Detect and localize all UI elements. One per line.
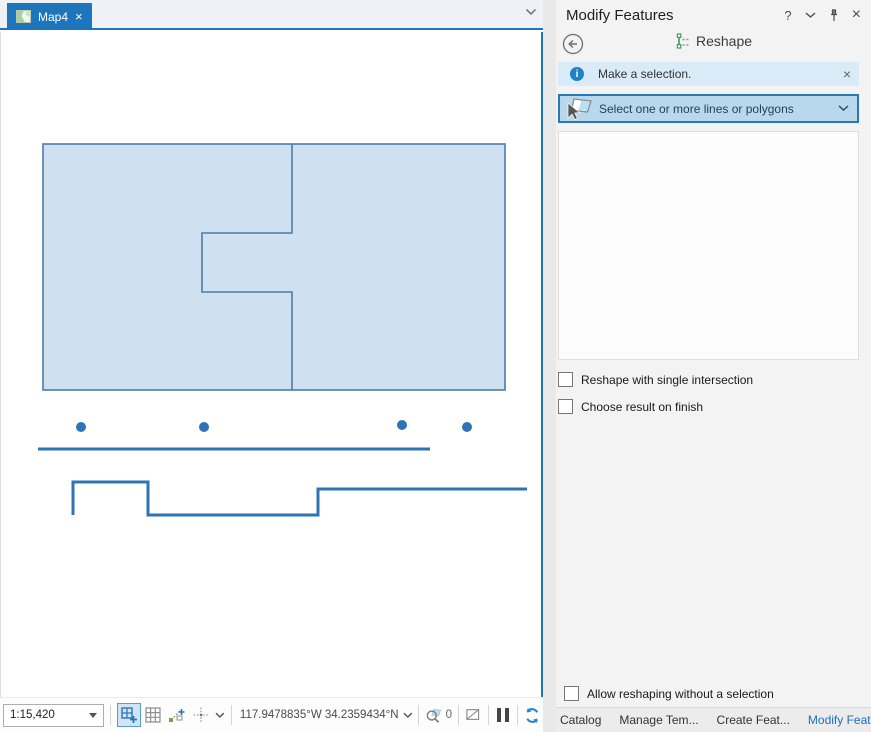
map-view-tab[interactable]: Map4 × (7, 3, 92, 30)
vertex-snapping-icon (168, 707, 186, 723)
snap-to-features-button[interactable] (165, 703, 189, 727)
map-status-bar: 1:15,420 (0, 697, 543, 732)
line-feature-stepped[interactable] (73, 482, 527, 515)
dock-tab-bar: Catalog Manage Tem... Create Feat... Mod… (556, 707, 871, 732)
arcgis-pro-window: Map4 × 1:15,420 (0, 0, 871, 732)
map-canvas[interactable] (0, 32, 543, 697)
crosshair-icon (193, 707, 209, 723)
selected-count: 0 (446, 709, 452, 721)
checkbox-label: Allow reshaping without a selection (587, 687, 774, 701)
footer-option-row: Allow reshaping without a selection (564, 686, 774, 701)
map-features (1, 32, 541, 697)
divider (418, 705, 419, 725)
info-message-bar: i Make a selection. × (558, 62, 859, 86)
info-icon: i (570, 67, 584, 81)
polygon-features[interactable] (43, 144, 505, 390)
selection-method-label: Select one or more lines or polygons (599, 102, 838, 116)
divider (458, 705, 459, 725)
option-row: Reshape with single intersection (558, 372, 859, 387)
choose-result-on-finish-checkbox[interactable] (558, 399, 573, 414)
tool-header: Reshape (556, 31, 871, 58)
point-feature[interactable] (462, 422, 472, 432)
snapping-toggle-button[interactable] (117, 703, 141, 727)
selection-extent-icon[interactable] (465, 707, 481, 723)
divider (517, 705, 518, 725)
grid-icon (145, 707, 161, 723)
selected-features-icon[interactable] (425, 707, 443, 724)
coordinates-menu-chevron-icon[interactable] (403, 712, 413, 719)
grid-toggle-button[interactable] (141, 703, 165, 727)
tool-title: Reshape (696, 33, 752, 49)
panel-title: Modify Features (566, 7, 784, 24)
point-feature[interactable] (76, 422, 86, 432)
tab-strip-menu-chevron-icon[interactable] (525, 8, 537, 16)
dismiss-info-icon[interactable]: × (843, 66, 851, 82)
snapping-icon (120, 706, 138, 724)
checkbox-label: Choose result on finish (581, 400, 703, 414)
coordinates-readout: 117.9478835°W 34.2359434°N (240, 709, 399, 721)
close-tab-icon[interactable]: × (75, 10, 83, 23)
divider (231, 705, 232, 725)
panel-menu-chevron-icon[interactable] (805, 12, 816, 19)
dynamic-constraints-button[interactable] (189, 703, 213, 727)
view-tab-strip: Map4 × (0, 0, 543, 30)
dock-tab-manage-templates[interactable]: Manage Tem... (619, 713, 698, 727)
pin-icon[interactable] (829, 9, 839, 22)
dropdown-chevron-icon[interactable] (838, 105, 849, 112)
option-row: Choose result on finish (558, 399, 859, 414)
dock-tab-catalog[interactable]: Catalog (560, 713, 601, 727)
reshape-icon (675, 33, 691, 49)
close-panel-icon[interactable]: × (852, 7, 861, 23)
panel-content: i Make a selection. × Select one or more… (558, 62, 859, 414)
refresh-icon[interactable] (524, 707, 540, 724)
allow-reshaping-without-selection-checkbox[interactable] (564, 686, 579, 701)
tool-title-row: Reshape (556, 33, 871, 52)
dock-tab-create-features[interactable]: Create Feat... (717, 713, 790, 727)
info-message: Make a selection. (598, 67, 843, 81)
pause-drawing-button[interactable] (497, 708, 509, 722)
point-feature[interactable] (199, 422, 209, 432)
scale-dropdown-icon[interactable] (89, 713, 97, 718)
select-tool-icon (565, 97, 593, 120)
map-thumbnail-icon (16, 10, 31, 23)
map-pane: Map4 × 1:15,420 (0, 0, 543, 732)
selection-list[interactable] (558, 131, 859, 360)
modify-features-panel: Modify Features ? × (556, 0, 871, 732)
constraints-menu-chevron-icon[interactable] (215, 712, 225, 719)
reshape-single-intersection-checkbox[interactable] (558, 372, 573, 387)
help-icon[interactable]: ? (784, 9, 791, 22)
divider (488, 705, 489, 725)
divider (110, 705, 111, 725)
selection-method-dropdown[interactable]: Select one or more lines or polygons (558, 94, 859, 123)
dock-tab-modify-features[interactable]: Modify Feat... (808, 713, 871, 727)
scale-combo[interactable]: 1:15,420 (3, 704, 104, 727)
map-tab-label: Map4 (38, 10, 68, 24)
point-feature[interactable] (397, 420, 407, 430)
panel-header: Modify Features ? × (556, 0, 871, 30)
scale-value: 1:15,420 (10, 709, 55, 721)
checkbox-label: Reshape with single intersection (581, 373, 753, 387)
